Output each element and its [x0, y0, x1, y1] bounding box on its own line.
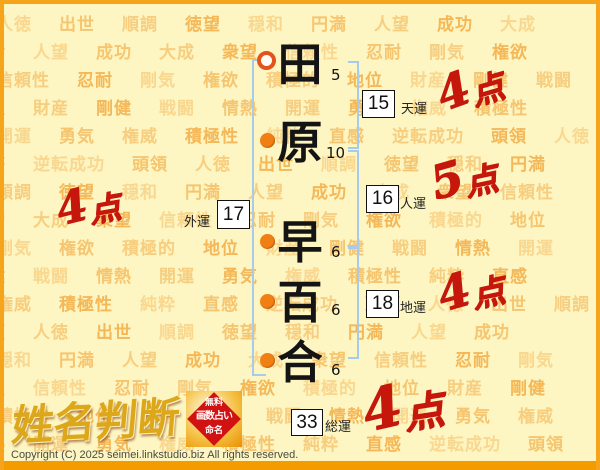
name-char-2: 原 — [274, 120, 326, 165]
chiun-value-box: 18 — [366, 290, 399, 318]
gaiun-label: 外運 — [184, 211, 210, 230]
chiun-label: 地運 — [400, 297, 426, 316]
stroke-count-4: 6 — [331, 301, 341, 319]
tenun-score: 4点 — [430, 52, 507, 118]
tenun-bracket — [348, 61, 359, 149]
tenun-label: 天運 — [401, 98, 427, 117]
seal-line-1: 無料 — [186, 397, 242, 410]
name-char-3: 早 — [274, 220, 326, 265]
stroke-count-1: 5 — [331, 66, 341, 84]
stroke-count-2: 10 — [326, 144, 345, 162]
name-char-1: 田 — [274, 42, 326, 87]
name-char-5: 合 — [274, 340, 326, 385]
chiun-score: 4点 — [432, 256, 507, 318]
gaiun-value-box: 17 — [217, 200, 250, 229]
soun-score: 4点 — [357, 368, 447, 440]
site-logo[interactable]: 姓名判断 — [9, 383, 182, 453]
jinun-score: 5点 — [425, 144, 500, 206]
seimei-result-page: 人徳出世順調徳望穏和円満人望成功大成円満人望成功大成衆望信頼性忍耐剛気権欲信頼性… — [0, 0, 600, 470]
jinun-label: 人運 — [400, 193, 426, 212]
filled-dot-marker — [260, 353, 275, 368]
tenun-value-box: 15 — [362, 90, 395, 118]
stroke-count-5: 6 — [331, 361, 341, 379]
seal-line-3: 命名 — [186, 425, 242, 438]
free-naming-seal-badge[interactable]: 無料 画数占い 命名 — [186, 391, 242, 447]
copyright-text: Copyright (C) 2025 seimei.linkstudio.biz… — [11, 449, 298, 461]
soun-value-box: 33 — [291, 409, 323, 436]
bottom-accent-bar — [0, 461, 600, 470]
stroke-count-3: 6 — [331, 243, 341, 261]
filled-dot-marker — [260, 133, 275, 148]
name-char-4: 百 — [274, 280, 326, 325]
gaiun-bracket — [252, 59, 266, 376]
filled-dot-marker — [260, 234, 275, 249]
jinun-bracket — [348, 150, 359, 247]
gaiun-score: 4点 — [52, 175, 123, 233]
chiun-bracket — [348, 247, 359, 359]
soun-label: 総運 — [325, 416, 351, 435]
seal-line-2: 画数占い — [186, 410, 242, 425]
jinun-value-box: 16 — [366, 185, 399, 213]
filled-dot-marker — [260, 294, 275, 309]
